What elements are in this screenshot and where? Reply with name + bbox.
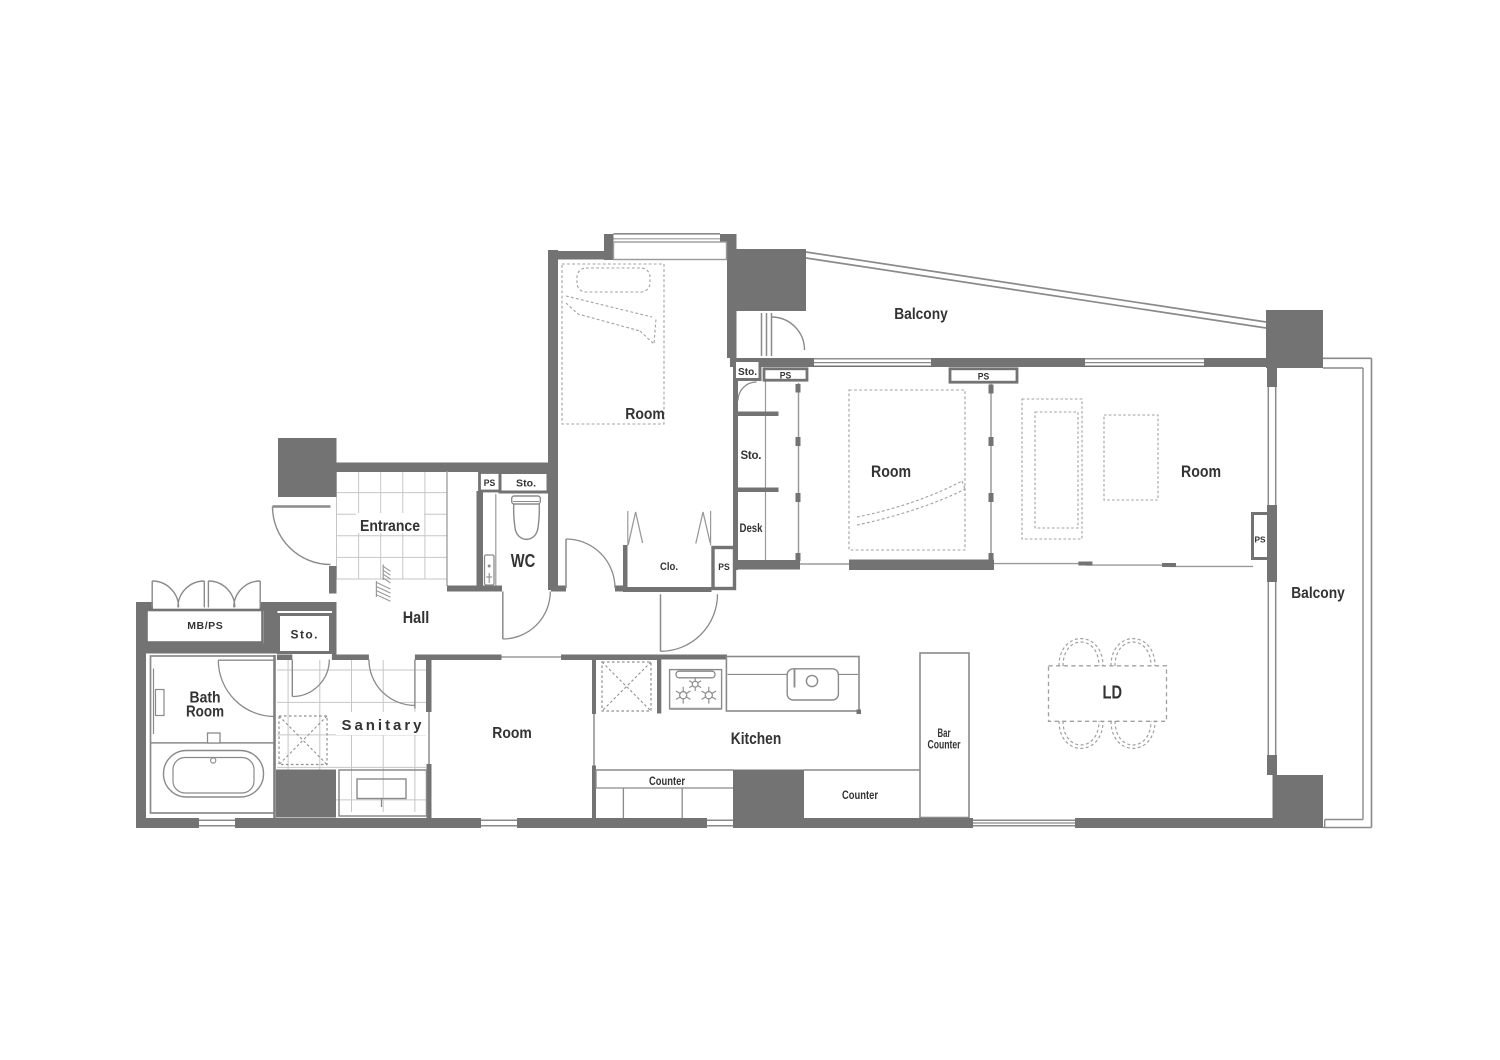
svg-text:Counter: Counter	[928, 740, 961, 752]
svg-text:Room: Room	[1181, 463, 1221, 481]
svg-text:PS: PS	[718, 562, 730, 572]
svg-text:Clo.: Clo.	[660, 561, 678, 573]
svg-text:Room: Room	[492, 725, 532, 742]
svg-text:Desk: Desk	[740, 521, 763, 535]
svg-text:PS: PS	[1255, 535, 1266, 545]
svg-text:PS: PS	[484, 478, 496, 488]
svg-text:LD: LD	[1103, 683, 1123, 703]
svg-text:Balcony: Balcony	[1291, 585, 1345, 602]
svg-text:Room: Room	[871, 463, 911, 481]
svg-text:Balcony: Balcony	[894, 306, 948, 323]
svg-text:Sto.: Sto.	[738, 367, 757, 378]
svg-text:Room: Room	[625, 406, 665, 423]
svg-text:Bar: Bar	[938, 728, 951, 740]
svg-text:Counter: Counter	[649, 776, 685, 788]
svg-text:Hall: Hall	[403, 608, 430, 627]
svg-text:Counter: Counter	[842, 790, 878, 802]
svg-text:PS: PS	[978, 372, 990, 382]
svg-text:WC: WC	[511, 551, 536, 571]
svg-text:Room: Room	[186, 704, 224, 721]
svg-text:Entrance: Entrance	[360, 518, 420, 535]
svg-text:MB/PS: MB/PS	[187, 620, 223, 632]
svg-text:Sanitary: Sanitary	[342, 717, 423, 734]
svg-text:Sto.: Sto.	[741, 450, 762, 462]
svg-text:Kitchen: Kitchen	[731, 730, 782, 748]
svg-text:PS: PS	[780, 371, 792, 381]
svg-text:Sto.: Sto.	[516, 478, 536, 490]
